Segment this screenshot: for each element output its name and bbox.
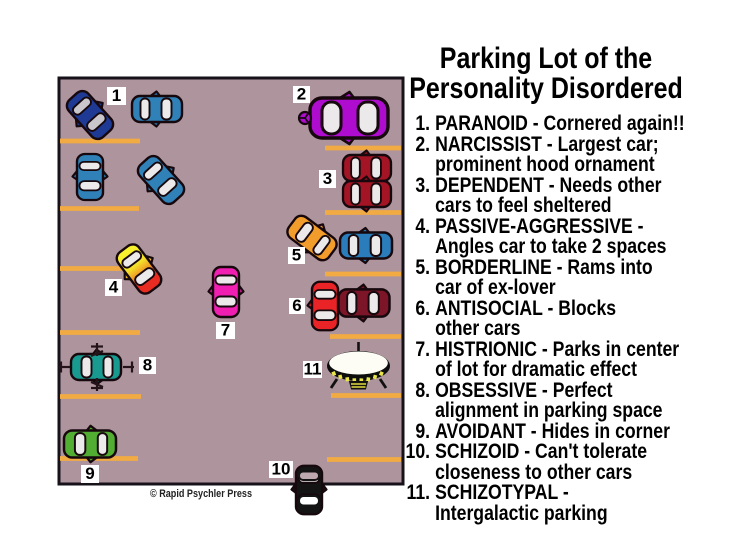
svg-text:7: 7 (221, 321, 230, 340)
svg-text:© Rapid Psychler Press: © Rapid Psychler Press (150, 488, 252, 500)
svg-text:5: 5 (292, 246, 301, 265)
svg-text:9: 9 (85, 464, 94, 483)
svg-text:1: 1 (112, 86, 121, 105)
svg-text:2: 2 (297, 85, 306, 104)
svg-text:6: 6 (292, 296, 301, 315)
svg-text:8: 8 (143, 356, 152, 375)
svg-text:4: 4 (109, 278, 119, 297)
svg-text:11: 11 (304, 360, 322, 379)
svg-text:10: 10 (272, 460, 291, 479)
svg-text:3: 3 (323, 169, 332, 188)
